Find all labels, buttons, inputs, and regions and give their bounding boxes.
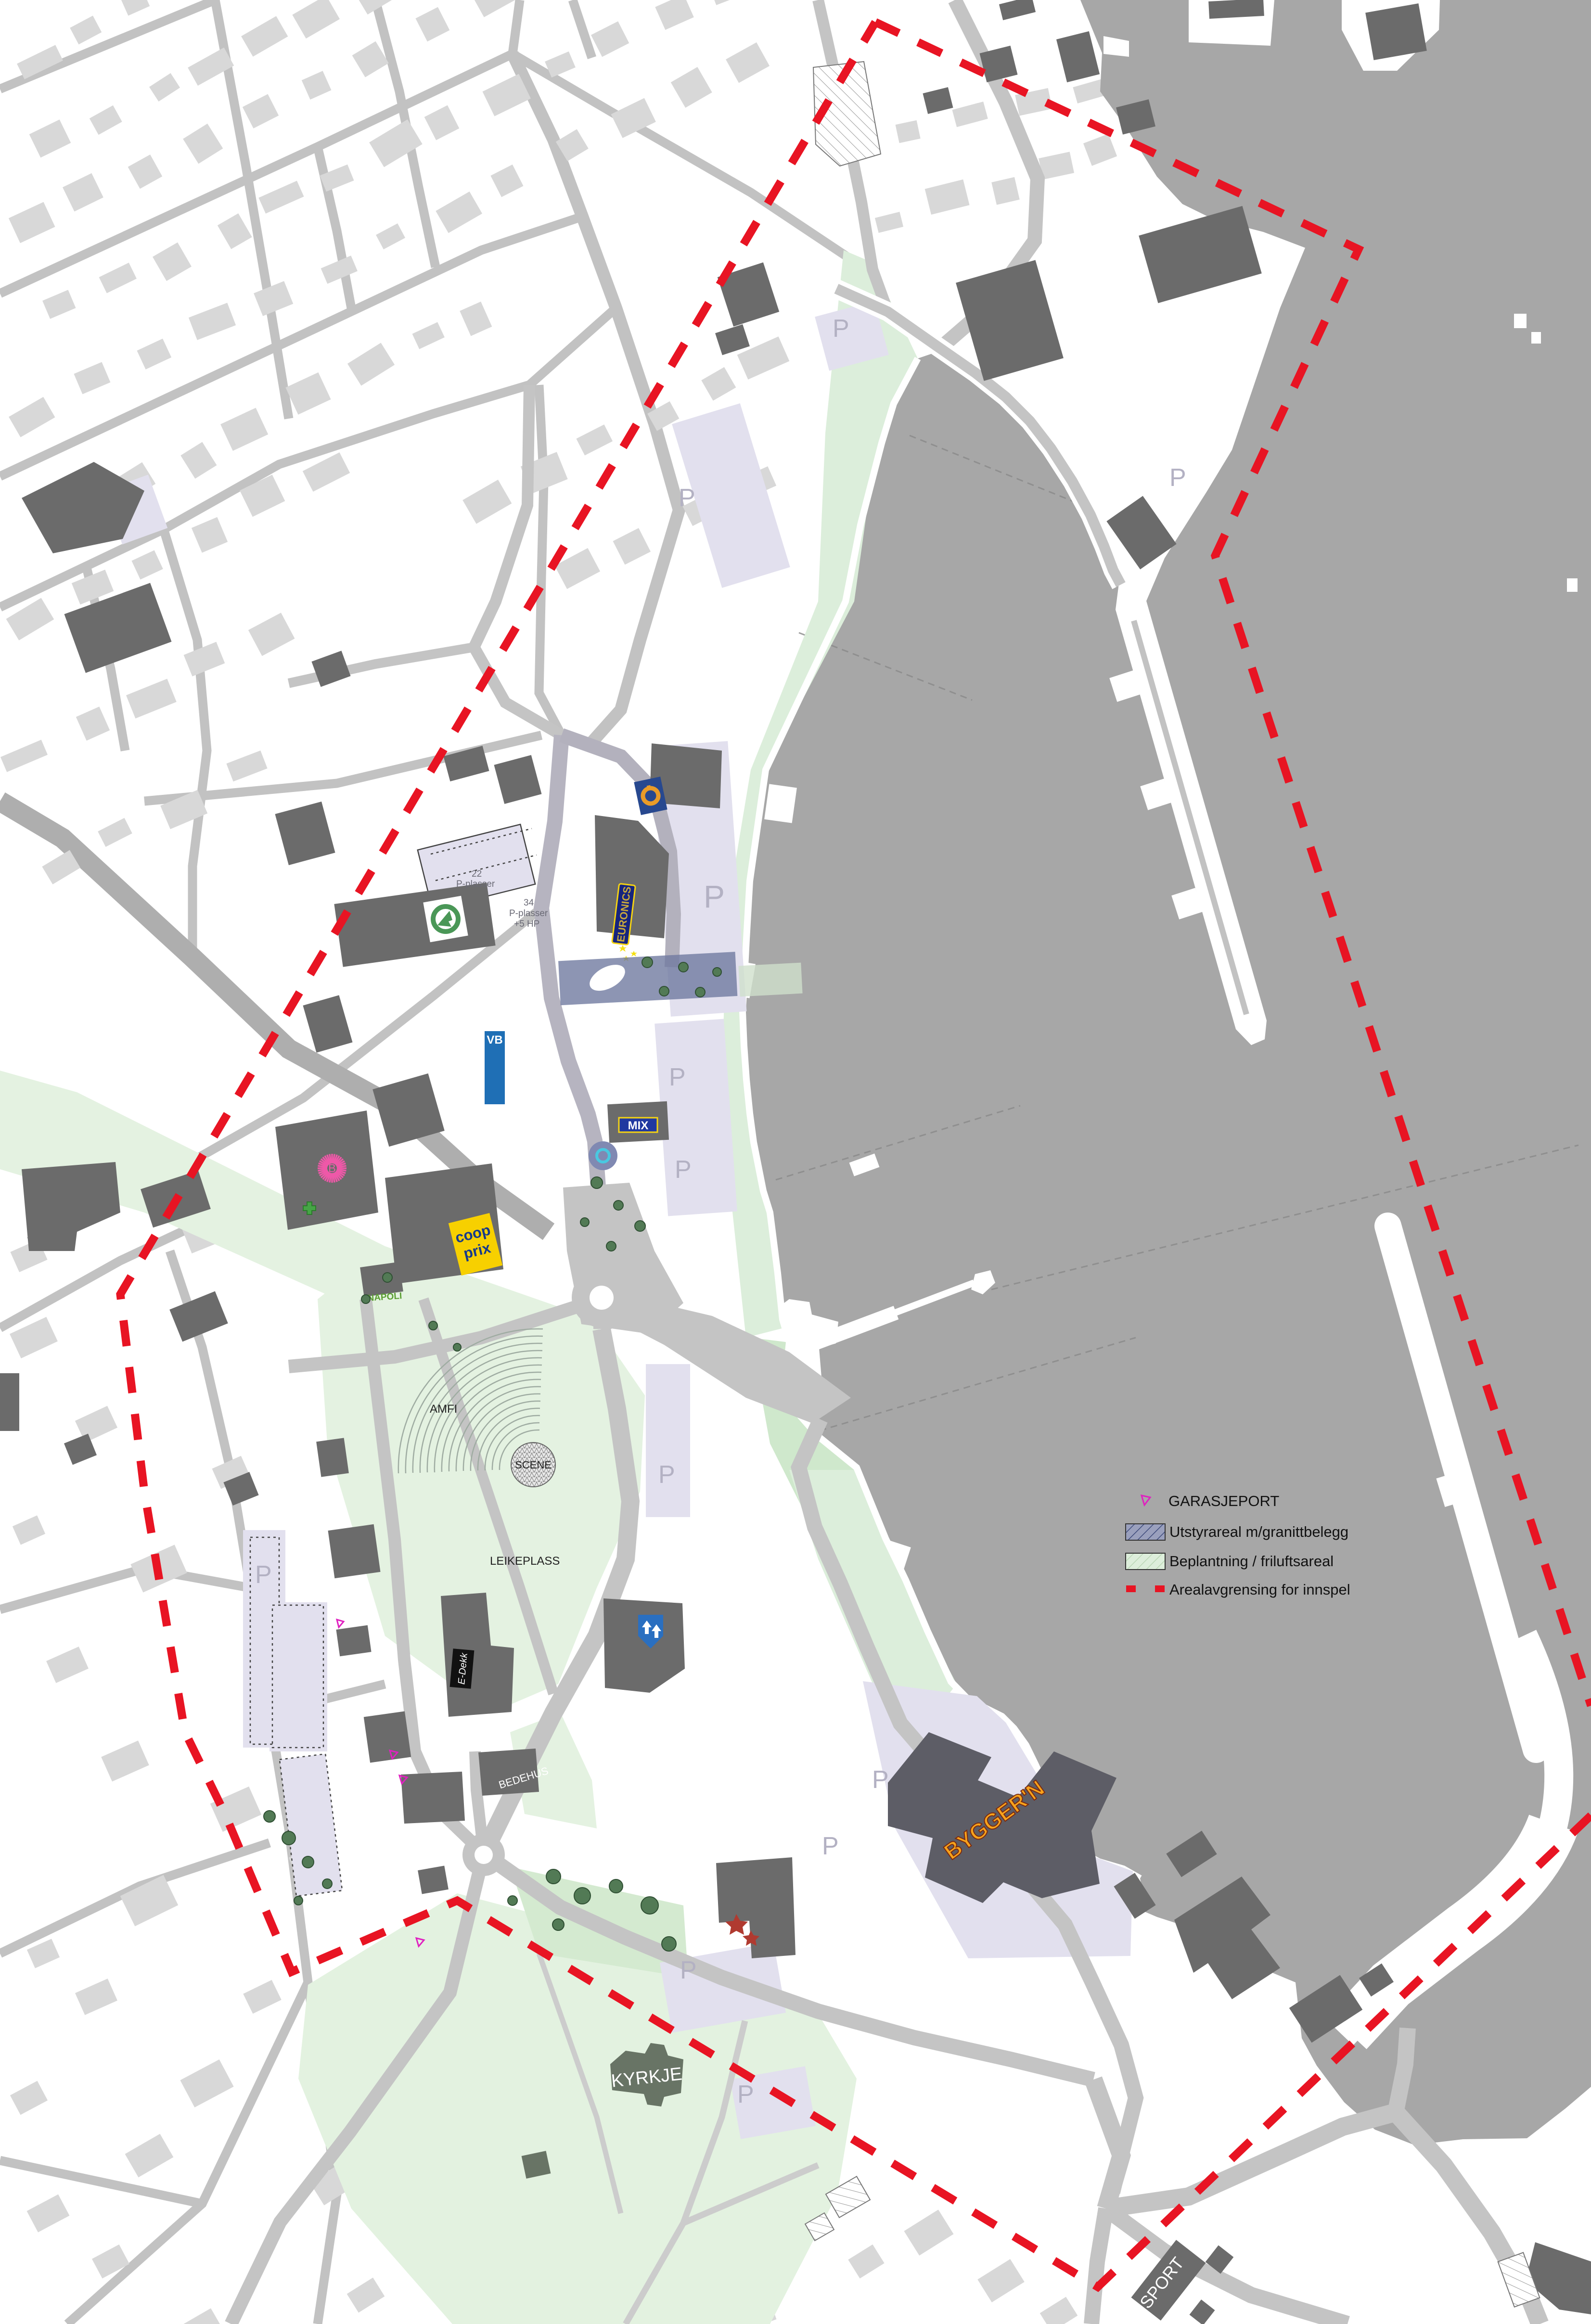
- svg-text:SCENE: SCENE: [515, 1459, 552, 1471]
- svg-text:P: P: [1169, 464, 1186, 492]
- svg-text:P-plasser: P-plasser: [456, 879, 495, 889]
- svg-text:GARASJEPORT: GARASJEPORT: [1168, 1493, 1279, 1509]
- svg-text:P: P: [675, 1156, 692, 1184]
- svg-text:Utstyrareal m/granittbelegg: Utstyrareal m/granittbelegg: [1169, 1523, 1348, 1540]
- svg-text:Beplantning / friluftsareal: Beplantning / friluftsareal: [1169, 1553, 1334, 1570]
- svg-text:P-plasser: P-plasser: [509, 908, 548, 919]
- svg-text:B: B: [328, 1162, 336, 1175]
- svg-text:34: 34: [524, 898, 534, 908]
- svg-text:MIX: MIX: [628, 1119, 649, 1132]
- svg-text:P: P: [833, 315, 849, 343]
- svg-text:P: P: [704, 879, 725, 914]
- svg-text:P: P: [679, 484, 695, 512]
- svg-text:P: P: [737, 2081, 754, 2108]
- svg-text:LEIKEPLASS: LEIKEPLASS: [490, 1555, 560, 1568]
- svg-text:22: 22: [472, 869, 482, 879]
- svg-text:P: P: [872, 1766, 889, 1794]
- svg-text:VB: VB: [487, 1034, 502, 1047]
- svg-text:P: P: [669, 1063, 686, 1091]
- svg-text:P: P: [255, 1561, 272, 1589]
- svg-text:AMFI: AMFI: [430, 1403, 457, 1416]
- svg-text:P: P: [680, 1956, 697, 1984]
- svg-text:P: P: [822, 1832, 839, 1860]
- svg-text:Arealavgrensing for innspel: Arealavgrensing for innspel: [1169, 1581, 1350, 1598]
- svg-text:P: P: [658, 1461, 675, 1489]
- svg-text:+5 HP: +5 HP: [514, 919, 539, 929]
